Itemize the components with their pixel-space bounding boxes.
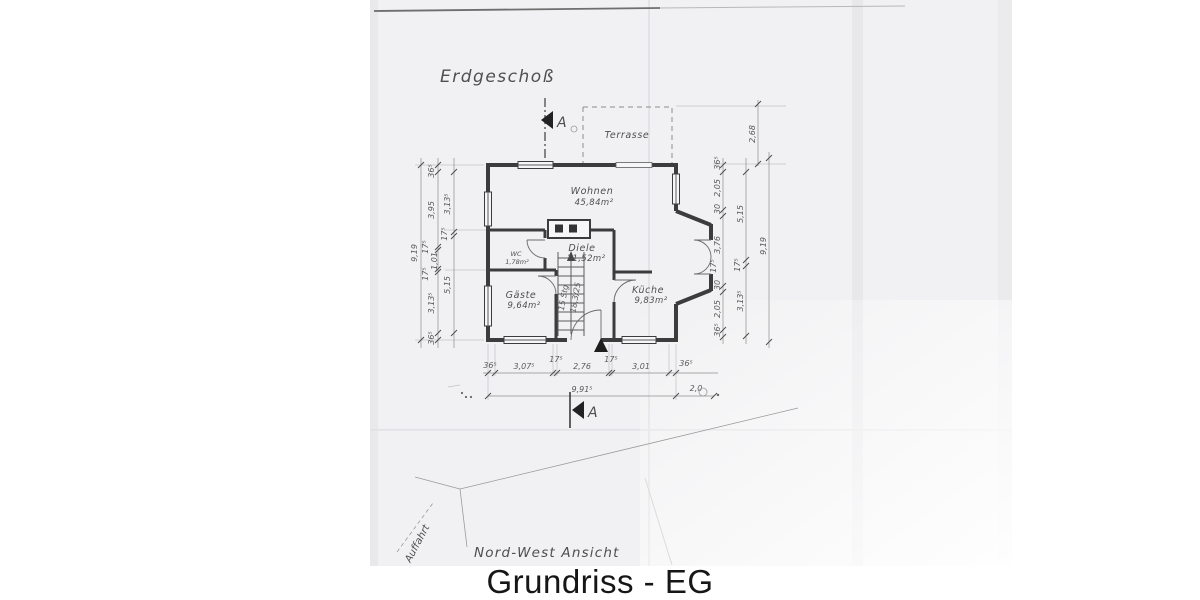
dim-bottom-3: 2,76 [573,362,591,371]
dim-right-inner-7: 36⁵ [713,323,722,336]
dim-left-inner-2: 5,15 [443,276,452,294]
dim-bottom-1: 3,07⁵ [513,362,534,371]
dim-right-mid-0: 5,15 [736,205,745,223]
dim-right-inner-6: 2,05 [713,300,722,318]
room-label-diele: Diele [568,243,595,254]
dim-terrace-depth: 2,68 [748,125,757,143]
dim-left-inner-0: 3,13⁵ [443,193,452,214]
dim-left-mid-3: 1,01 [430,252,439,270]
dim-left-mid-2: 17⁵ [421,240,430,253]
room-area-diele: 11,52m² [567,254,606,264]
pencil-dot [470,396,472,398]
dim-bottom-6: 36⁵ [679,359,692,368]
page-caption: Grundriss - EG [486,563,713,600]
dim-left-mid-0: 36⁵ [427,164,436,177]
dim-right-outer: 9,19 [759,237,768,255]
paper-light-corner [640,300,1012,566]
dim-right-inner-1: 2,05 [713,179,722,197]
dim-right-inner-4: 17⁵ [709,259,718,272]
floor-title: Erdgeschoß [440,67,555,87]
dim-right-inner-3: 3,76 [713,236,722,254]
view-note: Nord-West Ansicht [474,545,620,561]
pencil-dot [461,392,463,394]
room-area-wohnen: 45,84m² [575,198,614,208]
room-label-wohnen: Wohnen [571,186,614,197]
dim-right-mid-2: 3,13⁵ [736,290,745,311]
paper-left-streak [370,0,378,566]
room-label-kueche: Küche [632,285,664,296]
dim-left-inner-1: 17⁵ [440,227,449,240]
dim-right-inner-5: 30 [713,280,722,290]
room-label-gaeste: Gäste [506,290,537,301]
dim-left-mid-5: 3,13⁵ [427,292,436,313]
room-area-wc: 1,78m² [505,258,529,266]
dim-left-mid-4: 17⁵ [421,267,430,280]
dim-right-inner-0: 36⁵ [713,156,722,169]
chimney-block [548,220,590,238]
section-letter-bottom: A [587,405,598,421]
room-label-terrasse: Terrasse [605,130,650,141]
dim-right-inner-2: 30 [713,204,722,214]
site-dot [717,394,719,396]
pencil-dot [465,396,467,398]
dim-bottom-4: 17⁵ [604,355,617,364]
dim-right-mid-1: 17⁵ [733,258,742,271]
room-area-kueche: 9,83m² [634,296,667,306]
section-letter-top: A [556,115,567,131]
dim-bottom-0: 36⁵ [483,361,496,370]
dim-left-outer: 9,19 [410,244,419,262]
room-area-gaeste: 9,64m² [507,301,540,311]
scanned-floorplan-page: Erdgeschoß A Terrasse [0,0,1200,600]
room-label-wc: WC [511,250,522,258]
dim-left-mid-6: 36⁵ [427,331,436,344]
floorplan-svg: Erdgeschoß A Terrasse [0,0,1200,600]
dim-bottom-2: 17⁵ [549,355,562,364]
dim-left-mid-1: 3,95 [427,201,436,219]
dim-bottom-total: 9,91⁵ [571,385,592,394]
dim-bottom-5: 3,01 [632,362,650,371]
